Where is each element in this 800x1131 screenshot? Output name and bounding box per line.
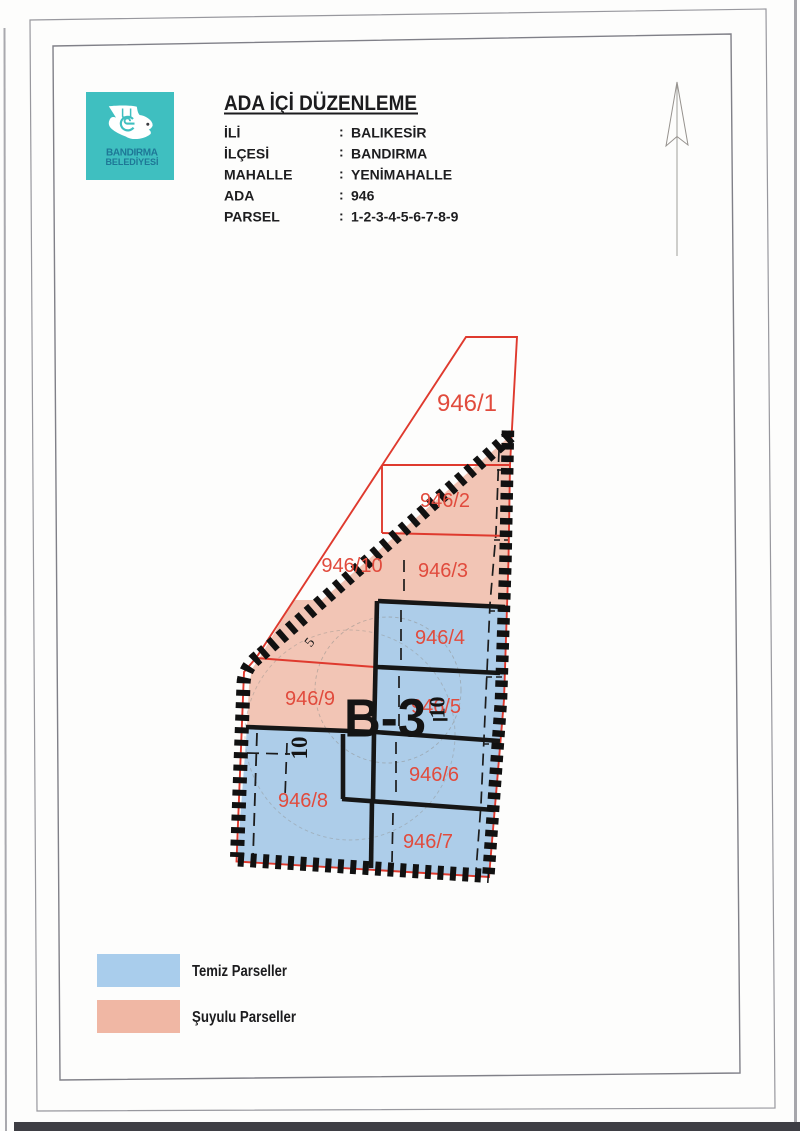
svg-text:Temiz Parseller: Temiz Parseller <box>192 963 287 980</box>
svg-text:946/3: 946/3 <box>418 560 468 582</box>
svg-text:946/1: 946/1 <box>437 390 497 417</box>
svg-text:946/2: 946/2 <box>420 490 470 512</box>
svg-text:BELEDİYESİ: BELEDİYESİ <box>106 157 159 167</box>
svg-text::: : <box>339 124 344 140</box>
svg-text:PARSEL: PARSEL <box>224 209 280 225</box>
svg-text:946/4: 946/4 <box>415 627 465 649</box>
svg-text:946/8: 946/8 <box>278 790 328 812</box>
svg-text:B-3: B-3 <box>344 689 426 749</box>
svg-text:10: 10 <box>287 737 312 760</box>
svg-text:ADA İÇİ DÜZENLEME: ADA İÇİ DÜZENLEME <box>224 92 417 115</box>
svg-text:ADA: ADA <box>224 188 254 204</box>
svg-text:İLİ: İLİ <box>224 125 240 141</box>
svg-text:BALIKESİR: BALIKESİR <box>351 125 426 141</box>
svg-text:YENİMAHALLE: YENİMAHALLE <box>351 167 452 183</box>
svg-text:946/7: 946/7 <box>403 831 453 853</box>
svg-text:İLÇESİ: İLÇESİ <box>224 146 269 162</box>
svg-text::: : <box>339 208 344 224</box>
svg-text::: : <box>339 144 344 160</box>
svg-text::: : <box>339 166 344 182</box>
svg-text:10: 10 <box>425 697 450 719</box>
svg-text:MAHALLE: MAHALLE <box>224 167 292 183</box>
svg-text:1-2-3-4-5-6-7-8-9: 1-2-3-4-5-6-7-8-9 <box>351 209 459 225</box>
svg-text::: : <box>339 187 344 203</box>
svg-text:BANDIRMA: BANDIRMA <box>351 146 427 162</box>
svg-text:946/6: 946/6 <box>409 764 459 786</box>
svg-text:946: 946 <box>351 188 375 204</box>
svg-text:Şuyulu Parseller: Şuyulu Parseller <box>192 1009 296 1026</box>
svg-text:946/10: 946/10 <box>321 555 382 577</box>
svg-text:946/9: 946/9 <box>285 688 335 710</box>
